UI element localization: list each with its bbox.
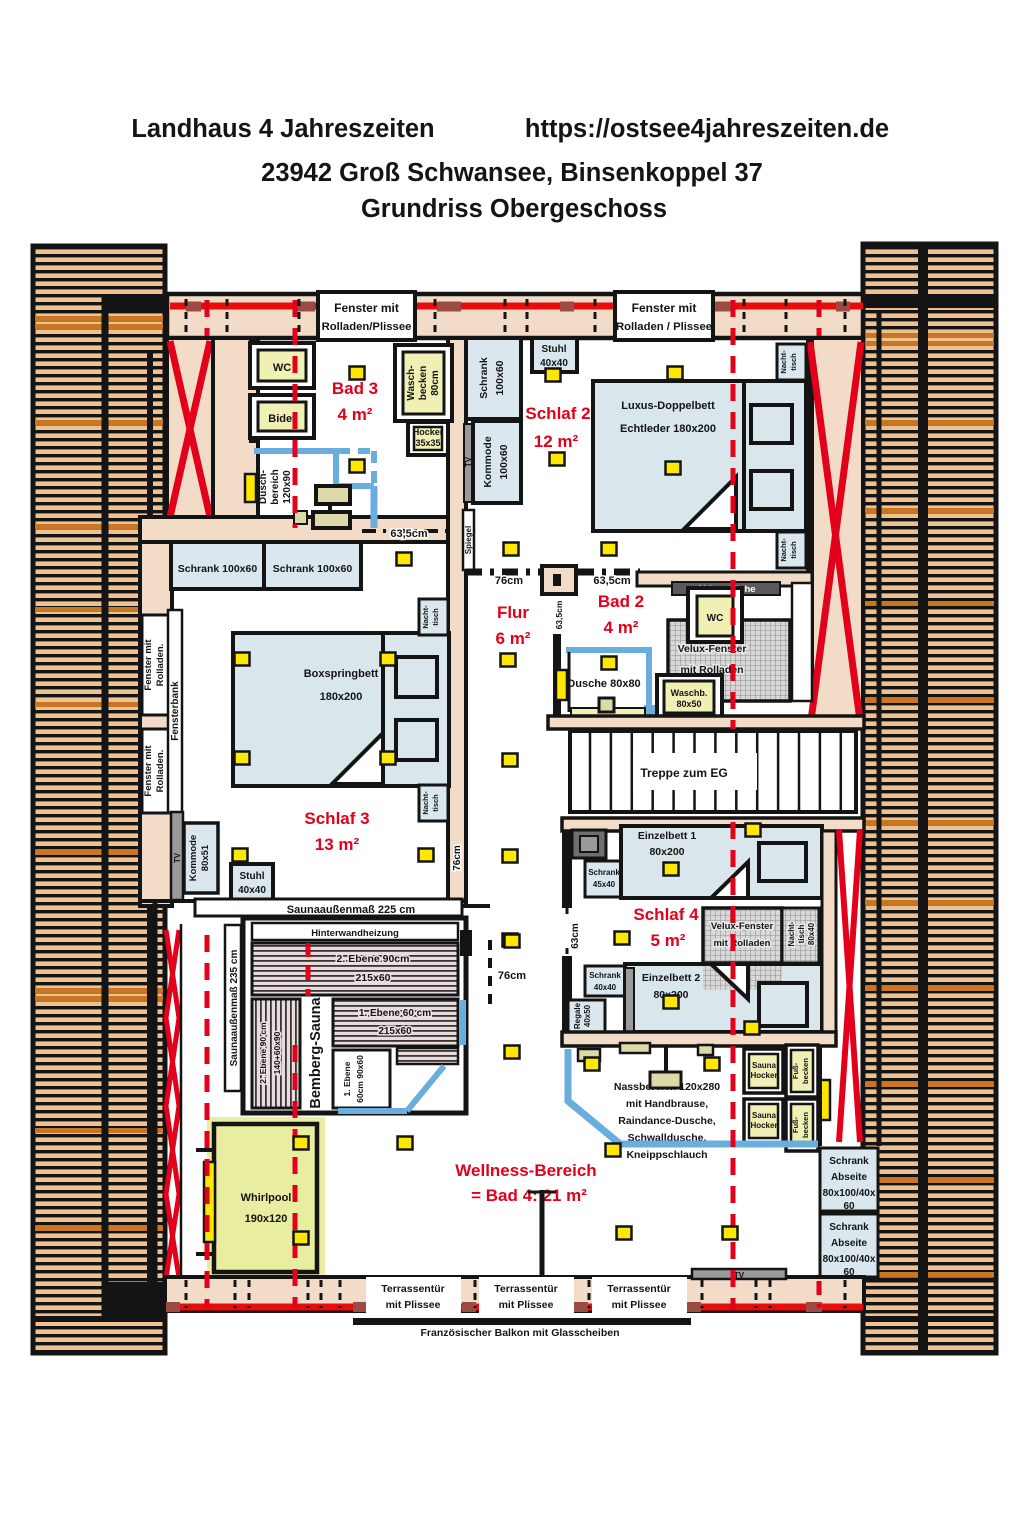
svg-text:Abseite: Abseite [831, 1172, 868, 1183]
svg-text:63cm: 63cm [570, 923, 581, 949]
svg-text:12 m²: 12 m² [534, 432, 579, 451]
svg-text:Treppe zum EG: Treppe zum EG [640, 766, 727, 780]
svg-text:Fenster mit: Fenster mit [632, 301, 697, 315]
svg-text:Wellness-Bereich: Wellness-Bereich [455, 1161, 596, 1180]
svg-text:Luxus-Doppelbett: Luxus-Doppelbett [621, 400, 715, 412]
svg-text:Saunaaußenmaß 235 cm: Saunaaußenmaß 235 cm [229, 950, 240, 1067]
svg-text:tisch: tisch [789, 353, 798, 371]
svg-text:13 m²: 13 m² [315, 835, 360, 854]
svg-text:Kneippschlauch: Kneippschlauch [626, 1149, 707, 1161]
svg-text:Kommode: Kommode [482, 436, 494, 487]
svg-text:Hinterwandheizung: Hinterwandheizung [311, 928, 399, 939]
svg-text:215x60: 215x60 [378, 1026, 412, 1037]
svg-text:45x40: 45x40 [593, 880, 616, 889]
svg-text:100x60: 100x60 [494, 360, 506, 395]
svg-text:Waschb.: Waschb. [671, 688, 708, 698]
svg-text:Rolladen/Plissee: Rolladen/Plissee [322, 321, 412, 333]
svg-text:Fenster mit: Fenster mit [143, 639, 154, 691]
svg-text:mit Plissee: mit Plissee [386, 1299, 441, 1311]
svg-text:Terrassentür: Terrassentür [381, 1283, 444, 1295]
svg-text:1. Ebene 60 cm: 1. Ebene 60 cm [359, 1008, 431, 1019]
svg-text:Fenster mit: Fenster mit [334, 301, 399, 315]
svg-text:Fenster mit: Fenster mit [143, 745, 154, 797]
svg-text:Nacht-: Nacht- [421, 791, 430, 815]
svg-text:Nacht-: Nacht- [421, 605, 430, 629]
svg-text:tisch: tisch [431, 608, 440, 626]
svg-text:63,5cm: 63,5cm [554, 600, 564, 629]
svg-text:120x90: 120x90 [282, 470, 293, 504]
svg-text:Schrank: Schrank [588, 868, 620, 877]
svg-text:Regale: Regale [573, 1002, 582, 1029]
svg-text:23942 Groß Schwansee, Binsenko: 23942 Groß Schwansee, Binsenkoppel 37 [261, 159, 763, 187]
svg-text:Spiegel: Spiegel [464, 526, 473, 554]
svg-text:Bemberg-Sauna: Bemberg-Sauna [308, 996, 324, 1108]
svg-text:Grundriss Obergeschoss: Grundriss Obergeschoss [361, 195, 667, 223]
svg-text:Abseite: Abseite [831, 1238, 868, 1249]
svg-text:tisch: tisch [431, 794, 440, 812]
svg-text:140+60x90: 140+60x90 [272, 1031, 282, 1074]
svg-text:= Bad 4: 21 m²: = Bad 4: 21 m² [471, 1186, 587, 1205]
svg-text:Hocker: Hocker [413, 427, 444, 437]
svg-text:76cm: 76cm [495, 575, 523, 587]
svg-text:WC: WC [273, 362, 291, 374]
svg-text:Schlaf 2: Schlaf 2 [525, 404, 590, 423]
svg-text:https://ostsee4jahreszeiten.de: https://ostsee4jahreszeiten.de [525, 115, 889, 143]
svg-text:100x60: 100x60 [498, 444, 510, 479]
svg-text:Landhaus 4 Jahreszeiten: Landhaus 4 Jahreszeiten [131, 115, 434, 143]
svg-text:Velux-Fenster: Velux-Fenster [678, 643, 747, 655]
svg-text:180x200: 180x200 [320, 691, 363, 703]
svg-text:Boxspringbett: Boxspringbett [304, 668, 379, 680]
svg-text:63,5cm: 63,5cm [390, 528, 428, 540]
svg-text:TV: TV [734, 1271, 745, 1280]
svg-text:63,5cm: 63,5cm [593, 575, 631, 587]
svg-text:mit Handbrause,: mit Handbrause, [626, 1098, 708, 1110]
svg-text:80x40: 80x40 [807, 922, 816, 945]
svg-text:4 m²: 4 m² [338, 405, 373, 424]
svg-text:1. Ebene: 1. Ebene [342, 1061, 352, 1096]
svg-text:Rolladen.: Rolladen. [155, 644, 166, 687]
svg-text:40x50: 40x50 [583, 1004, 592, 1027]
svg-text:80x100/40x: 80x100/40x [823, 1254, 876, 1265]
svg-text:Raindance-Dusche,: Raindance-Dusche, [618, 1115, 716, 1127]
svg-text:Sauna: Sauna [752, 1061, 777, 1070]
svg-text:Stuhl: Stuhl [240, 871, 265, 882]
svg-text:5 m²: 5 m² [651, 931, 686, 950]
svg-text:TV: TV [173, 852, 182, 863]
svg-text:Hocker: Hocker [750, 1121, 777, 1130]
svg-text:80x200: 80x200 [649, 846, 684, 858]
svg-text:Rolladen.: Rolladen. [155, 750, 166, 793]
svg-text:Fuß-: Fuß- [791, 1116, 800, 1133]
svg-text:60cm 90x60: 60cm 90x60 [355, 1055, 365, 1103]
svg-text:Dusch-: Dusch- [258, 470, 269, 504]
svg-text:Schrank: Schrank [589, 971, 621, 980]
svg-text:Dusche 80x80: Dusche 80x80 [567, 678, 640, 690]
svg-text:76cm: 76cm [498, 970, 526, 982]
svg-text:tisch: tisch [797, 925, 806, 944]
svg-text:Bad 2: Bad 2 [598, 592, 644, 611]
svg-text:WC: WC [707, 613, 724, 624]
svg-text:mit Plissee: mit Plissee [499, 1299, 554, 1311]
svg-text:40x40: 40x40 [594, 983, 617, 992]
svg-text:mit Plissee: mit Plissee [612, 1299, 667, 1311]
svg-text:80cm: 80cm [430, 370, 441, 396]
svg-text:Schrank 100x60: Schrank 100x60 [178, 563, 258, 575]
svg-text:Schrank: Schrank [829, 1156, 869, 1167]
svg-text:215x60: 215x60 [355, 972, 390, 984]
svg-text:4 m²: 4 m² [604, 618, 639, 637]
svg-text:Flur: Flur [497, 603, 529, 622]
svg-text:Wasch-: Wasch- [406, 365, 417, 400]
svg-text:Französischer Balkon mit Glass: Französischer Balkon mit Glasscheiben [421, 1327, 620, 1339]
svg-text:40x40: 40x40 [238, 885, 266, 896]
svg-text:Einzelbett 2: Einzelbett 2 [642, 972, 701, 984]
svg-text:2. Ebene 90 cm: 2. Ebene 90 cm [258, 1022, 268, 1084]
svg-text:Whirlpool: Whirlpool [241, 1192, 292, 1204]
svg-text:Stuhl: Stuhl [542, 344, 567, 355]
svg-text:Bidet: Bidet [268, 413, 296, 425]
svg-text:bereich: bereich [270, 469, 281, 505]
svg-text:Nacht-: Nacht- [779, 538, 788, 562]
svg-text:Schrank 100x60: Schrank 100x60 [273, 563, 353, 575]
svg-text:Schlaf 3: Schlaf 3 [304, 809, 369, 828]
svg-text:becken: becken [418, 366, 429, 400]
svg-text:tisch: tisch [789, 541, 798, 559]
svg-text:6 m²: 6 m² [496, 629, 531, 648]
svg-text:Terrassentür: Terrassentür [494, 1283, 557, 1295]
svg-text:Echtleder 180x200: Echtleder 180x200 [620, 423, 716, 435]
svg-text:Terrassentür: Terrassentür [607, 1283, 670, 1295]
svg-text:Schrank: Schrank [478, 357, 490, 399]
svg-text:Fensterbank: Fensterbank [170, 681, 181, 741]
svg-text:becken: becken [801, 1058, 810, 1084]
svg-text:Sauna: Sauna [752, 1111, 777, 1120]
svg-text:80x51: 80x51 [200, 844, 211, 871]
svg-text:Rolladen / Plissee: Rolladen / Plissee [616, 321, 712, 333]
svg-text:Velux-Fenster: Velux-Fenster [711, 921, 774, 932]
svg-text:Schlaf 4: Schlaf 4 [633, 905, 699, 924]
svg-text:Fuß-: Fuß- [791, 1062, 800, 1079]
svg-text:Bad 3: Bad 3 [332, 379, 378, 398]
svg-text:190x120: 190x120 [245, 1213, 288, 1225]
svg-text:Saunaaußenmaß 225 cm: Saunaaußenmaß 225 cm [287, 904, 416, 916]
svg-text:Nacht-: Nacht- [787, 921, 796, 946]
svg-text:60: 60 [843, 1201, 855, 1212]
svg-text:80x100/40x: 80x100/40x [823, 1188, 876, 1199]
svg-text:Kommode: Kommode [188, 835, 199, 881]
svg-text:Einzelbett 1: Einzelbett 1 [638, 830, 697, 842]
svg-text:35x35: 35x35 [415, 438, 440, 448]
svg-text:Schrank: Schrank [829, 1222, 869, 1233]
svg-text:2. Ebene 90cm: 2. Ebene 90cm [337, 953, 410, 965]
svg-text:76cm: 76cm [452, 845, 463, 871]
svg-text:Hocker: Hocker [750, 1071, 777, 1080]
svg-text:mit Rolladen: mit Rolladen [713, 938, 770, 949]
svg-text:80x50: 80x50 [676, 699, 701, 709]
svg-text:Nacht-: Nacht- [779, 350, 788, 374]
svg-text:becken: becken [801, 1112, 810, 1138]
